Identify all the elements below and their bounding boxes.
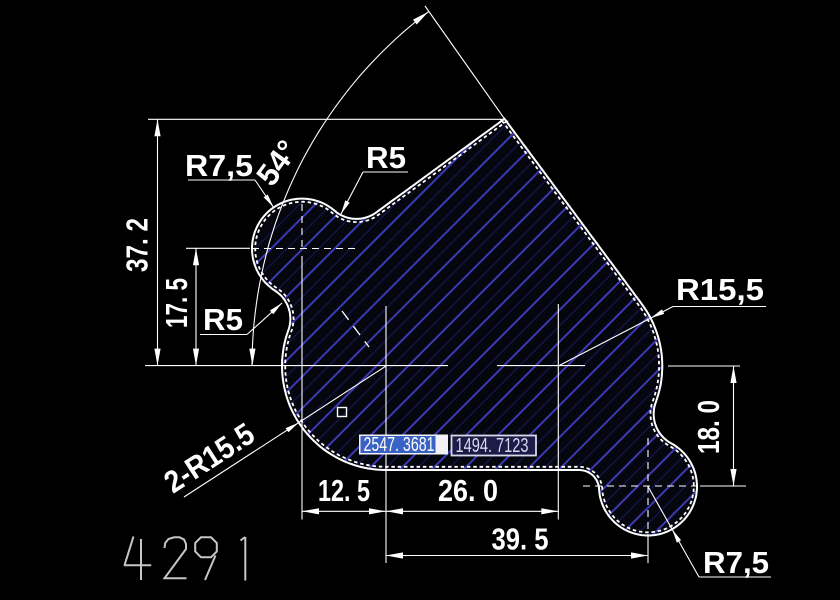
svg-text:37. 2: 37. 2 [120, 218, 155, 272]
svg-text:R7,5: R7,5 [185, 148, 253, 183]
svg-text:R15,5: R15,5 [676, 272, 764, 307]
svg-text:R7,5: R7,5 [703, 545, 769, 580]
svg-text:39. 5: 39. 5 [492, 522, 549, 557]
svg-text:17. 5: 17. 5 [159, 278, 194, 328]
svg-text:R5: R5 [203, 302, 243, 337]
svg-text:26. 0: 26. 0 [438, 473, 498, 508]
svg-text:18. 0: 18. 0 [691, 400, 726, 454]
svg-text:2547. 3681: 2547. 3681 [364, 434, 435, 456]
svg-text:12. 5: 12. 5 [318, 473, 370, 508]
svg-text:1494. 7123: 1494. 7123 [456, 435, 529, 457]
svg-text:R5: R5 [366, 140, 406, 175]
